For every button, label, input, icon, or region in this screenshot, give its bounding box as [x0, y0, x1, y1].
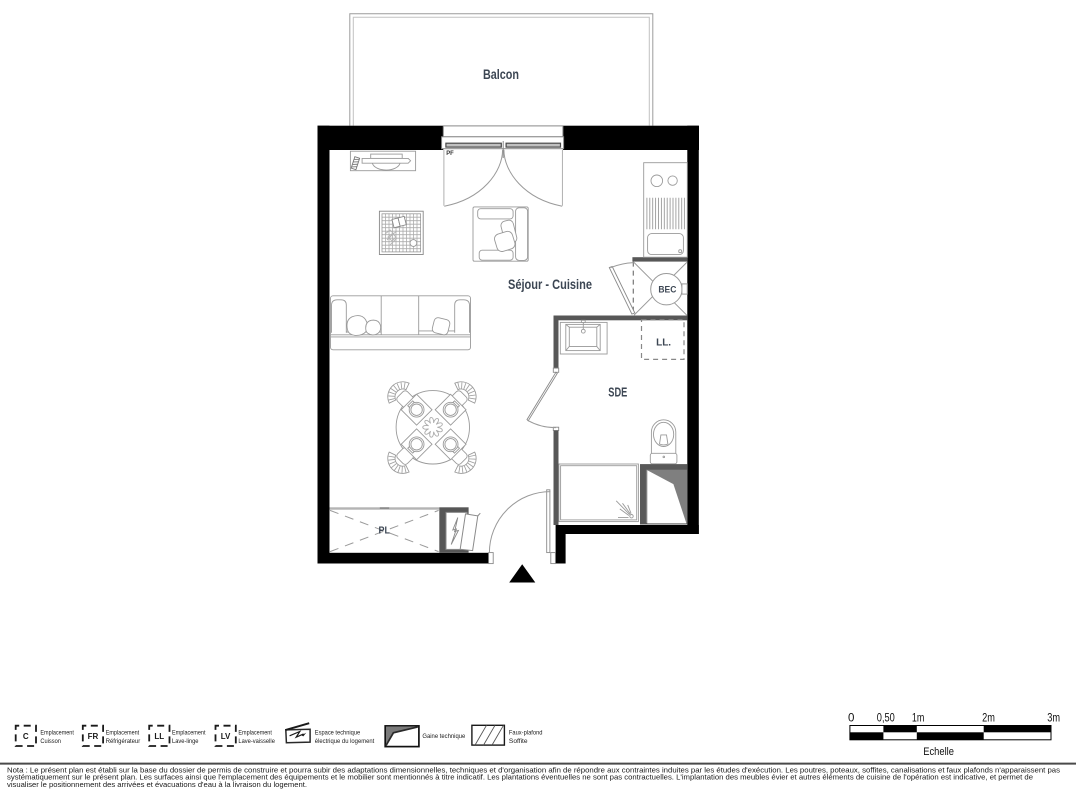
- svg-text:LL: LL: [154, 732, 164, 741]
- svg-text:Espace technique: Espace technique: [315, 729, 361, 736]
- svg-text:1m: 1m: [912, 713, 925, 725]
- svg-text:Emplacement: Emplacement: [238, 729, 272, 736]
- svg-text:Soffite: Soffite: [509, 738, 528, 745]
- svg-text:Réfrigérateur: Réfrigérateur: [106, 738, 141, 745]
- svg-text:Emplacement: Emplacement: [172, 729, 206, 736]
- svg-text:Lave-vaisselle: Lave-vaisselle: [238, 738, 275, 745]
- svg-text:0,50: 0,50: [877, 713, 895, 725]
- svg-text:visualiser le positionnement d: visualiser le positionnement des arrivée…: [7, 780, 307, 789]
- svg-text:Séjour - Cuisine: Séjour - Cuisine: [508, 277, 592, 292]
- svg-text:Gaine technique: Gaine technique: [422, 733, 465, 740]
- svg-text:Cuisson: Cuisson: [40, 738, 61, 745]
- svg-text:3m: 3m: [1047, 713, 1060, 725]
- svg-text:0: 0: [848, 713, 854, 725]
- svg-text:FR: FR: [88, 732, 99, 741]
- svg-text:Echelle: Echelle: [923, 746, 954, 758]
- svg-text:Emplacement: Emplacement: [40, 729, 74, 736]
- svg-text:Faux-plafond: Faux-plafond: [509, 729, 543, 736]
- svg-text:électrique du logement: électrique du logement: [315, 738, 375, 745]
- svg-text:LV: LV: [221, 732, 231, 741]
- svg-text:Emplacement: Emplacement: [106, 729, 140, 736]
- svg-text:BEC: BEC: [658, 285, 676, 295]
- svg-text:Lave-linge: Lave-linge: [172, 738, 199, 745]
- svg-text:Balcon: Balcon: [483, 66, 519, 82]
- svg-text:PF: PF: [446, 150, 454, 157]
- svg-text:C: C: [23, 732, 29, 741]
- svg-text:SDE: SDE: [608, 386, 627, 400]
- svg-text:2m: 2m: [982, 713, 995, 725]
- svg-text:LL.: LL.: [656, 336, 671, 348]
- svg-text:PL: PL: [378, 524, 390, 536]
